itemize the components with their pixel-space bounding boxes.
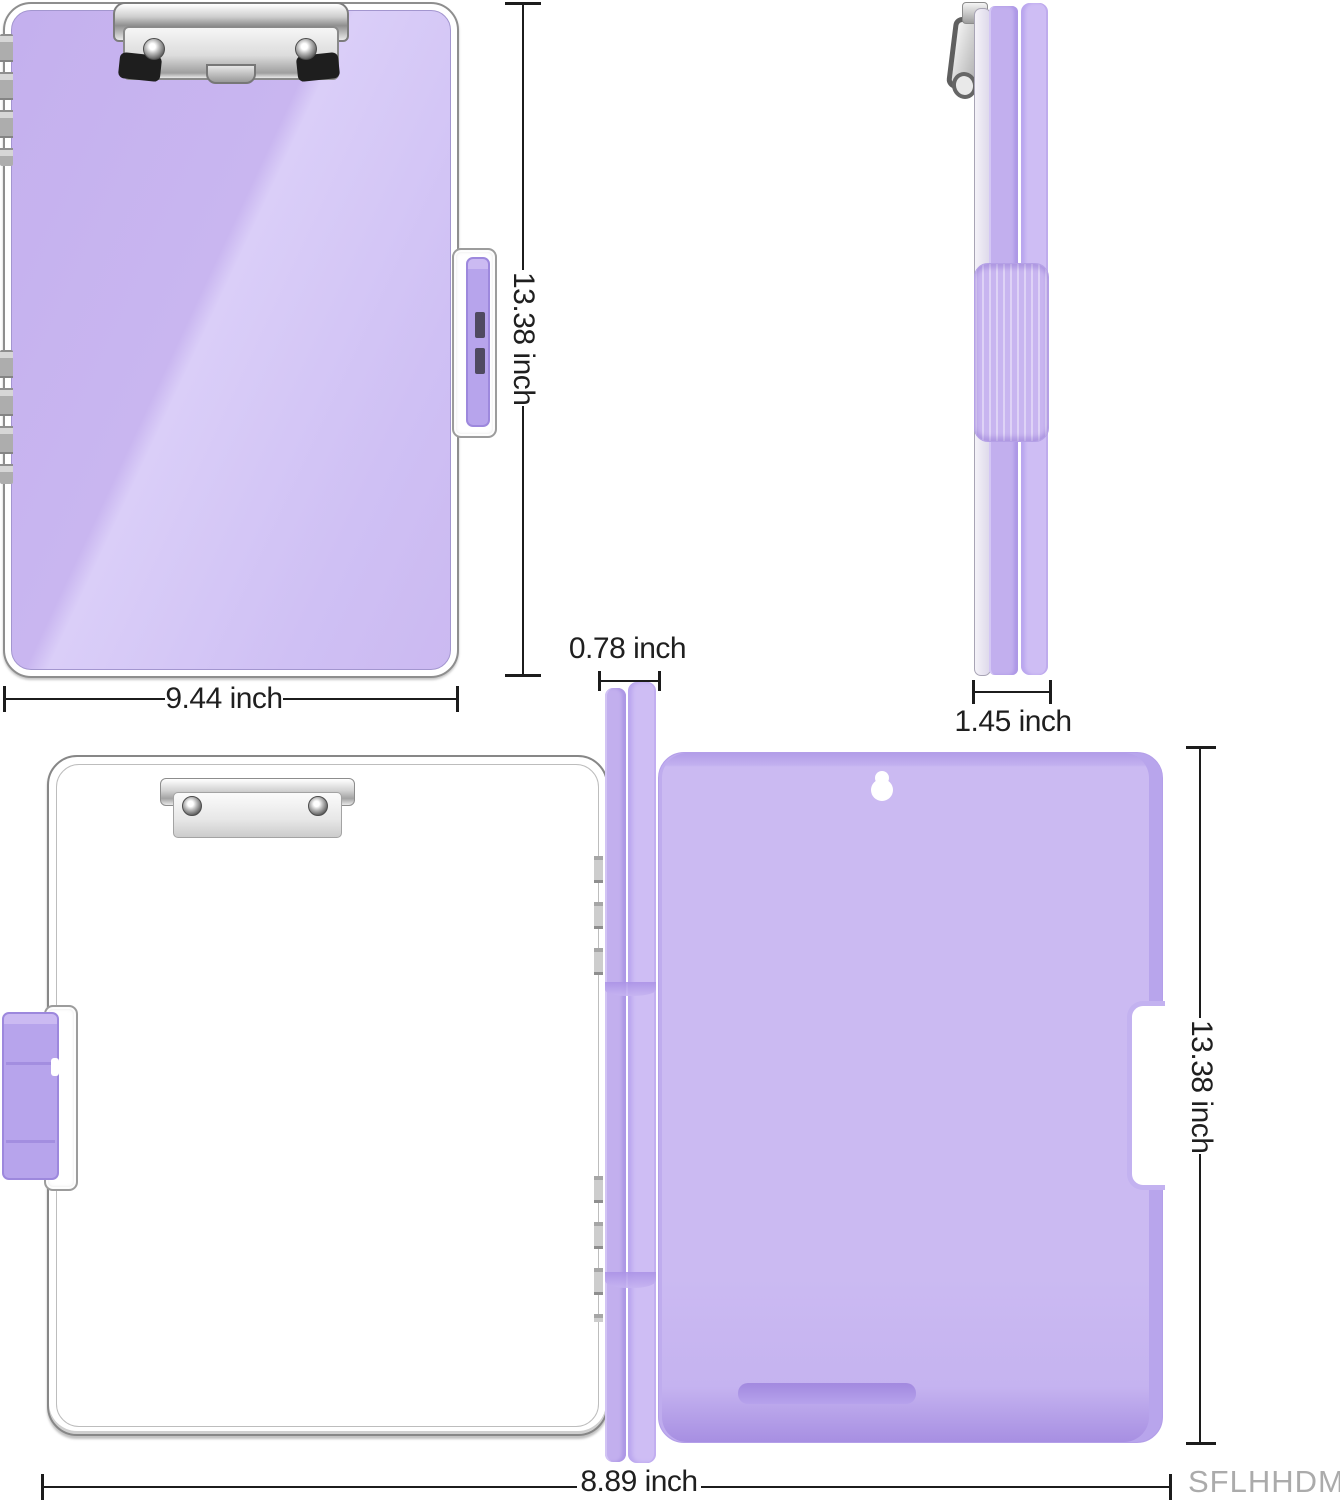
front-height-dim-line-lower [522,406,524,676]
side-thickness-dim-label: 1.45 inch [948,706,1078,738]
open-width-dim-line-left [41,1486,577,1488]
front-metal-clip [113,2,345,82]
back-height-dim-label: 13.38 inch [1184,1018,1218,1156]
front-left-hinge-upper [0,34,13,166]
front-width-dim-right-tick [456,686,459,712]
open-board-inner-edge [56,764,599,1427]
front-side-latch-tab [466,257,490,427]
front-latch-slot-upper [475,312,485,338]
spine-thickness-dim-line [598,680,661,682]
spine-inner-strip [605,688,626,1462]
open-latch-split-upper [6,1062,55,1065]
side-thickness-dim-right-tick [1049,680,1052,704]
back-height-dim-bottom-tick [1186,1442,1216,1445]
open-metal-clip [160,778,353,836]
front-height-dim-line-upper [522,2,524,270]
open-clip-screw-left [182,796,202,816]
spine-section-break-lower [605,1272,656,1288]
back-panel-handle-slot [738,1383,916,1404]
open-view-board [47,755,608,1436]
back-height-dim-line-upper [1199,746,1201,1018]
watermark-text: SFLHHDM [1188,1464,1340,1500]
front-height-dim-bottom-tick [505,674,541,677]
front-board-purple-surface [11,10,451,670]
open-width-dim-label: 8.89 inch [577,1466,701,1498]
spine-outer-strip [628,682,656,1463]
front-view-board [3,2,459,678]
spine-section-break-upper [605,982,656,996]
clip-lever [206,64,256,84]
back-panel-side-notch [1127,1001,1165,1190]
spine-thickness-dim-right-tick [658,671,661,691]
front-latch-slot-lower [475,348,485,374]
open-latch-tab [2,1012,59,1180]
clip-screw-right [295,38,317,60]
keyhole-hanger-hole-bulb [871,779,893,801]
product-dimension-diagram: 13.38 inch 9.44 inch 1.45 inch 0.78 inch [0,0,1340,1500]
front-width-dim-line-right [283,698,458,700]
open-latch-notch [51,1058,59,1076]
back-view-panel [658,752,1163,1443]
side-thickness-dim-line [972,691,1050,693]
open-latch-split-lower [6,1140,55,1143]
back-height-dim-line-lower [1199,1154,1201,1444]
open-right-hinge-upper [594,856,603,982]
front-width-dim-label: 9.44 inch [165,683,283,715]
side-view-latch-block [974,263,1049,442]
clip-screw-left [143,38,165,60]
front-left-hinge-lower [0,350,13,484]
open-width-dim-line-right [701,1486,1171,1488]
open-width-dim-right-tick [1169,1474,1172,1500]
open-clip-screw-right [308,796,328,816]
spine-thickness-dim-label: 0.78 inch [565,633,690,665]
back-height-dim-top-tick [1186,746,1216,749]
front-height-dim-label: 13.38 inch [506,270,540,408]
front-width-dim-line-left [3,698,165,700]
open-right-hinge-lower [594,1176,603,1322]
